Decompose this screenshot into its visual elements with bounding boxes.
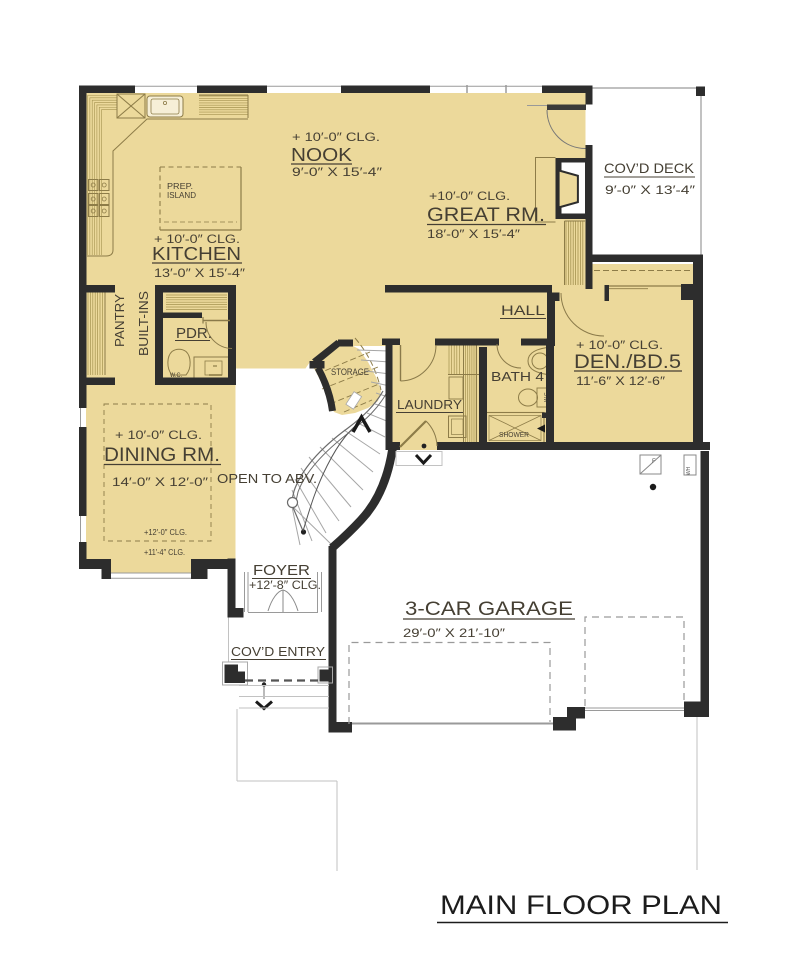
svg-text:3-CAR GARAGE: 3-CAR GARAGE xyxy=(405,599,573,620)
svg-text:+ 10′-0″ CLG.: + 10′-0″ CLG. xyxy=(576,340,663,352)
svg-text:FOYER: FOYER xyxy=(253,563,310,579)
svg-text:SHOWER: SHOWER xyxy=(499,432,529,439)
svg-text:PREP.: PREP. xyxy=(167,182,193,191)
svg-text:PDR.: PDR. xyxy=(176,326,212,342)
svg-text:COV’D DECK: COV’D DECK xyxy=(604,160,695,176)
svg-text:F: F xyxy=(652,459,656,465)
svg-text:11′-6″ X 12′-6″: 11′-6″ X 12′-6″ xyxy=(576,374,666,388)
svg-text:W.C.: W.C. xyxy=(170,373,182,379)
svg-text:9′-0″ X 13′-4″: 9′-0″ X 13′-4″ xyxy=(605,183,696,197)
svg-text:KITCHEN: KITCHEN xyxy=(152,244,241,264)
svg-text:29′-0″ X 21′-10″: 29′-0″ X 21′-10″ xyxy=(403,626,506,640)
svg-text:13′-0″ X 15′-4″: 13′-0″ X 15′-4″ xyxy=(154,266,246,280)
svg-text:OPEN TO ABV.: OPEN TO ABV. xyxy=(217,472,317,486)
svg-text:+11′-4″ CLG.: +11′-4″ CLG. xyxy=(144,547,185,557)
svg-text:9′-0″ X 15′-4″: 9′-0″ X 15′-4″ xyxy=(292,165,383,179)
svg-text:18′-0″ X 15′-4″: 18′-0″ X 15′-4″ xyxy=(427,227,521,241)
svg-text:STORAGE: STORAGE xyxy=(331,367,369,378)
svg-text:+ 10′-0″ CLG.: + 10′-0″ CLG. xyxy=(115,430,202,442)
svg-text:PANTRY: PANTRY xyxy=(112,294,127,347)
svg-text:BUILT-INS: BUILT-INS xyxy=(136,291,151,356)
svg-text:+12′-0″ CLG.: +12′-0″ CLG. xyxy=(144,527,187,537)
svg-text:HALL: HALL xyxy=(501,303,546,318)
svg-text:ISLAND: ISLAND xyxy=(167,191,196,200)
svg-text:GREAT RM.: GREAT RM. xyxy=(427,205,545,226)
svg-text:BATH 4: BATH 4 xyxy=(491,370,544,384)
svg-text:LAUNDRY: LAUNDRY xyxy=(397,397,462,412)
svg-text:+ 10′-0″ CLG.: + 10′-0″ CLG. xyxy=(292,132,380,144)
svg-text:+10′-0″ CLG.: +10′-0″ CLG. xyxy=(429,191,510,203)
svg-text:DINING RM.: DINING RM. xyxy=(104,445,220,466)
svg-text:14′-0″ X 12′-0″: 14′-0″ X 12′-0″ xyxy=(112,475,209,489)
svg-text:+12′-8″ CLG.: +12′-8″ CLG. xyxy=(249,580,321,592)
svg-text:WH: WH xyxy=(686,466,692,475)
svg-text:NOOK: NOOK xyxy=(291,145,352,165)
svg-text:DEN./BD.5: DEN./BD.5 xyxy=(574,352,681,373)
svg-text:COV’D ENTRY: COV’D ENTRY xyxy=(231,644,325,659)
svg-text:MAIN FLOOR PLAN: MAIN FLOOR PLAN xyxy=(440,890,722,920)
